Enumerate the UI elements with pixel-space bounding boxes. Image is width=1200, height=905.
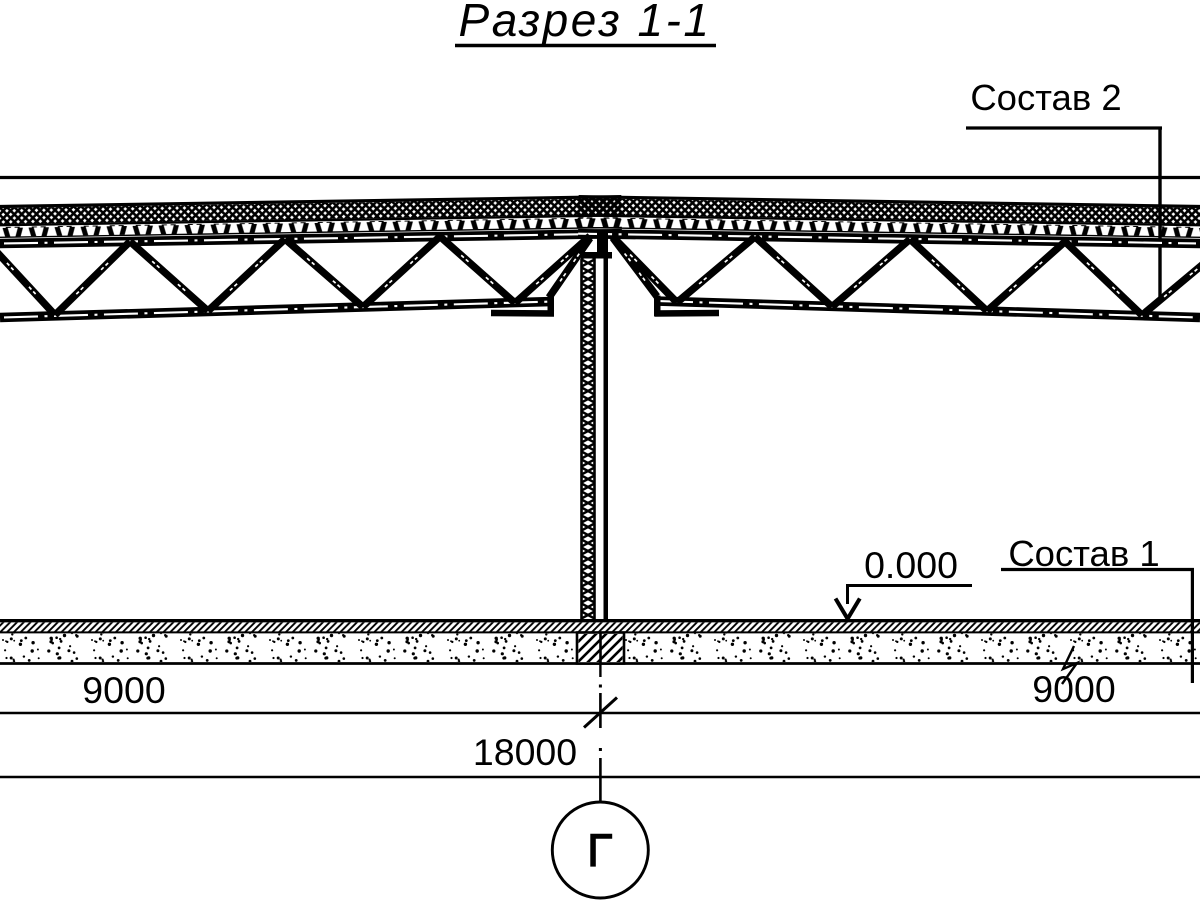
- svg-text:Состав 1: Состав 1: [1008, 533, 1159, 574]
- svg-text:9000: 9000: [82, 669, 165, 711]
- svg-text:0.000: 0.000: [864, 544, 958, 586]
- svg-text:9000: 9000: [1032, 668, 1115, 710]
- svg-text:Состав 2: Состав 2: [970, 77, 1121, 118]
- svg-text:18000: 18000: [473, 731, 577, 773]
- svg-text:Разрез 1-1: Разрез 1-1: [459, 0, 712, 46]
